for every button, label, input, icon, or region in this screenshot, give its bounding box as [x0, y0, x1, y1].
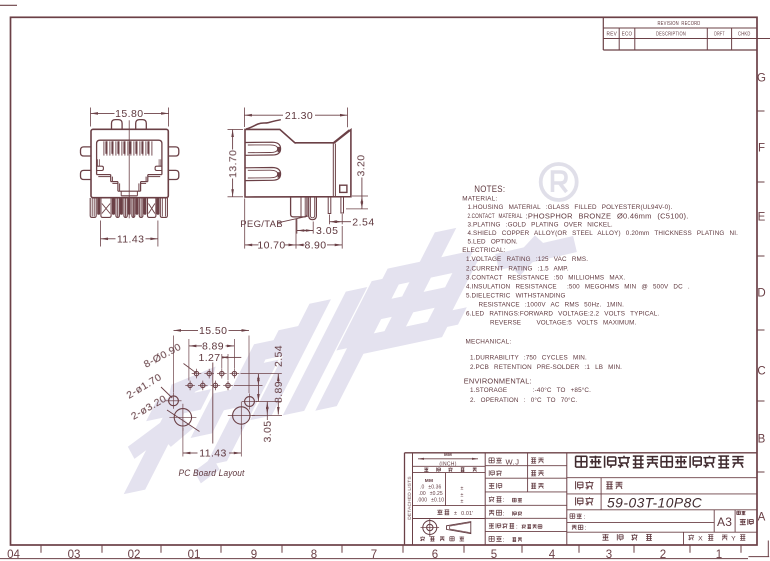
svg-text::: : — [585, 526, 587, 532]
svg-text::: : — [516, 525, 518, 531]
svg-text:.0 ±0.36: .0 ±0.36 — [420, 485, 441, 491]
svg-text:F: F — [758, 143, 765, 155]
svg-text:2.54: 2.54 — [273, 345, 285, 367]
svg-text:03: 03 — [68, 549, 81, 561]
svg-text:02: 02 — [128, 549, 141, 561]
svg-text:(INCH): (INCH) — [439, 461, 456, 467]
svg-text:1.27: 1.27 — [198, 352, 220, 364]
svg-text:DETACHED LISTS: DETACHED LISTS — [407, 476, 413, 520]
svg-text:MM: MM — [425, 478, 434, 484]
svg-text:2. OPERATION : 0°C TO 70°C.: 2. OPERATION : 0°C TO 70°C. — [470, 396, 577, 404]
svg-text:6: 6 — [432, 549, 438, 561]
svg-text:NOTES:: NOTES: — [474, 184, 505, 195]
svg-text:8.90: 8.90 — [304, 240, 326, 252]
svg-text:2.CONTACT MATERIAL: 2.CONTACT MATERIAL — [468, 213, 523, 220]
svg-text:ELECTRICAL:: ELECTRICAL: — [462, 247, 505, 254]
svg-text:MATERIAL:: MATERIAL: — [462, 195, 497, 202]
svg-text:G: G — [757, 73, 766, 85]
svg-text:59-03T-10P8C: 59-03T-10P8C — [607, 495, 703, 510]
svg-text:PC Board Layout: PC Board Layout — [179, 468, 245, 479]
svg-text:REVERSE VOLTAGE:5 VOLTS MAXI: REVERSE VOLTAGE:5 VOLTS MAXIMUM. — [490, 319, 636, 326]
svg-text::PHOSPHOR BRONZE Ø0.46mm (C510: :PHOSPHOR BRONZE Ø0.46mm (C5100). — [526, 212, 689, 221]
svg-text:7: 7 — [371, 549, 377, 561]
svg-text:REVISION RECORD: REVISION RECORD — [658, 21, 701, 27]
svg-text:8.89: 8.89 — [202, 341, 224, 353]
svg-text:5.DIELECTRIC WITHSTANDING: 5.DIELECTRIC WITHSTANDING — [466, 293, 566, 300]
svg-text:4: 4 — [549, 549, 556, 561]
svg-text:3.CONTACT RESISTANCE :50 MILLI: 3.CONTACT RESISTANCE :50 MILLIOHMS MAX. — [466, 274, 625, 281]
svg-text:B: B — [758, 434, 766, 446]
svg-text:21.30: 21.30 — [285, 110, 313, 122]
svg-text:.00 ±0.25: .00 ±0.25 — [419, 491, 443, 497]
svg-text:±: ± — [461, 499, 464, 505]
svg-text:1.HOUSING MATERIAL :GLASS FILL: 1.HOUSING MATERIAL :GLASS FILLED POLYEST… — [468, 204, 673, 211]
svg-text:2.PCB RETENTION PRE-SOLDER :1: 2.PCB RETENTION PRE-SOLDER :1 LB MIN. — [470, 364, 622, 371]
svg-text:4.INSULATION RESISTANCE :500: 4.INSULATION RESISTANCE :500 MEGOHMS MIN… — [466, 283, 690, 290]
svg-text:PEG/TAB: PEG/TAB — [240, 219, 283, 230]
svg-text:9: 9 — [251, 549, 257, 561]
svg-text:E: E — [758, 212, 766, 224]
svg-text:W.J: W.J — [506, 457, 520, 466]
svg-text:D: D — [757, 288, 765, 300]
svg-text:5.LED OPTION.: 5.LED OPTION. — [468, 239, 518, 246]
svg-text:REV: REV — [607, 31, 618, 37]
svg-text:CHKD: CHKD — [738, 31, 751, 37]
svg-text:6.LED RATINGS:FORWARD VOLTAGE:: 6.LED RATINGS:FORWARD VOLTAGE:2.2 VOLTS … — [466, 311, 659, 318]
svg-text:8: 8 — [311, 549, 317, 561]
svg-text:ECO: ECO — [622, 31, 633, 37]
svg-text:.000 ±0.10: .000 ±0.10 — [417, 498, 444, 504]
svg-text:RESISTANCE :1000V AC RMS 50Hz.: RESISTANCE :1000V AC RMS 50Hz. 1MIN. — [479, 302, 625, 309]
svg-text::: : — [584, 515, 586, 521]
svg-text:A3: A3 — [717, 515, 732, 529]
svg-text:MECHANICAL:: MECHANICAL: — [466, 338, 512, 345]
svg-text:01: 01 — [188, 549, 201, 561]
svg-text:3: 3 — [606, 549, 612, 561]
svg-text:4.SHIELD COPPER ALLOY(OR STEEL: 4.SHIELD COPPER ALLOY(OR STEEL ALLOY) 0.… — [468, 230, 739, 237]
svg-text:±: ± — [461, 493, 464, 499]
svg-text:±: ± — [461, 486, 464, 492]
svg-text:11.43: 11.43 — [117, 233, 145, 245]
svg-text:3.05: 3.05 — [316, 225, 338, 237]
svg-text:04: 04 — [7, 549, 20, 561]
svg-text:11.43: 11.43 — [199, 448, 227, 460]
svg-text:8.89: 8.89 — [273, 381, 285, 403]
svg-text:1.VOLTAGE RATING :125 VAC RMS.: 1.VOLTAGE RATING :125 VAC RMS. — [466, 256, 588, 263]
svg-text:Y: Y — [731, 535, 736, 542]
svg-text:1: 1 — [716, 549, 722, 561]
svg-text:MM: MM — [444, 452, 452, 457]
svg-text:3.05: 3.05 — [262, 420, 274, 442]
svg-text:10.70: 10.70 — [257, 240, 285, 252]
svg-text:5: 5 — [491, 549, 497, 561]
svg-text:2.CURRENT RATING :1.5 AMP.: 2.CURRENT RATING :1.5 AMP. — [466, 265, 569, 272]
svg-text:2: 2 — [660, 549, 666, 561]
svg-text:± 0.01': ± 0.01' — [454, 511, 473, 517]
svg-text:2.54: 2.54 — [352, 217, 374, 229]
svg-text::: : — [503, 497, 505, 504]
svg-text::: : — [503, 511, 505, 518]
svg-text:DRFT: DRFT — [714, 31, 725, 37]
svg-text:C: C — [757, 366, 765, 378]
svg-text:1.DURRABILITY :750 CYCLES MIN.: 1.DURRABILITY :750 CYCLES MIN. — [470, 354, 587, 361]
svg-text:15.50: 15.50 — [199, 325, 227, 337]
svg-text:15.80: 15.80 — [115, 108, 143, 120]
svg-text:13.70: 13.70 — [227, 150, 239, 178]
svg-text:DESCRIPTION: DESCRIPTION — [656, 31, 686, 37]
svg-text:ENVIRONMENTAL:: ENVIRONMENTAL: — [464, 376, 532, 385]
svg-text:1.STORAGE :-40°C TO +85°C.: 1.STORAGE :-40°C TO +85°C. — [470, 386, 591, 394]
svg-text:3.PLATING :GOLD PLATING OVER N: 3.PLATING :GOLD PLATING OVER NICKEL. — [468, 222, 613, 229]
svg-text:3.20: 3.20 — [355, 154, 367, 176]
svg-text::: : — [503, 537, 505, 544]
svg-text:X: X — [698, 535, 703, 542]
svg-text:A: A — [758, 512, 766, 524]
